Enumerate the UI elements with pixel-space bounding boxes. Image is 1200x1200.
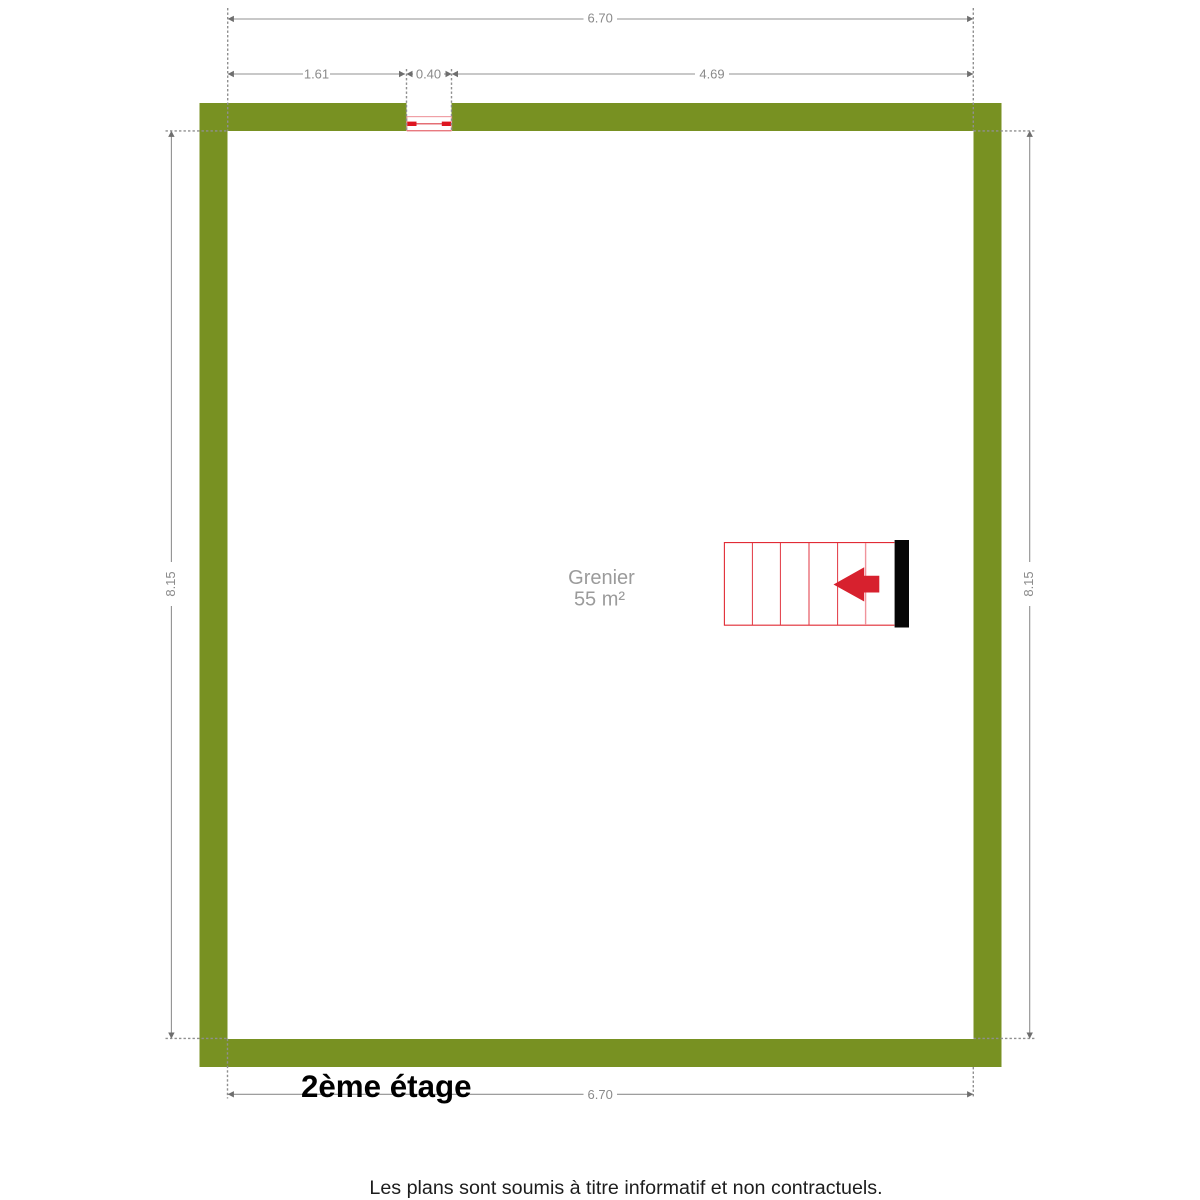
svg-text:55 m²: 55 m² [574, 589, 625, 611]
svg-text:2ème étage: 2ème étage [301, 1069, 472, 1104]
svg-text:1.61: 1.61 [304, 67, 329, 82]
svg-text:Grenier: Grenier [568, 567, 635, 589]
svg-text:Les plans sont soumis à titre: Les plans sont soumis à titre informatif… [369, 1177, 882, 1199]
svg-text:0.40: 0.40 [416, 67, 441, 82]
svg-text:8.15: 8.15 [1021, 571, 1036, 596]
svg-text:4.69: 4.69 [699, 67, 724, 82]
svg-text:6.70: 6.70 [588, 1087, 613, 1102]
svg-text:8.15: 8.15 [163, 571, 178, 596]
svg-text:6.70: 6.70 [588, 10, 613, 25]
